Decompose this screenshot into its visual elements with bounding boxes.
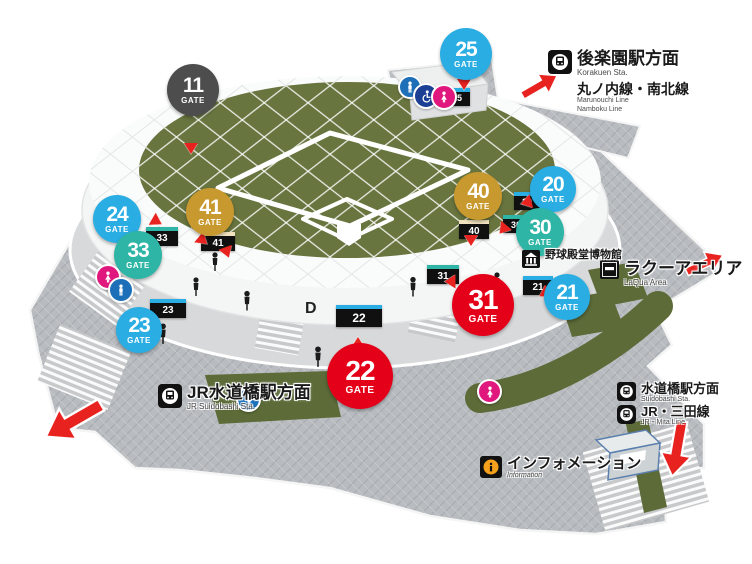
laqua-subtitle: LaQua Area bbox=[624, 278, 742, 288]
label-jr-suidobashi-station: JR水道橋駅方面 JR Suidobashi Sta. bbox=[158, 384, 311, 411]
information-title: インフォメーション bbox=[507, 456, 641, 472]
suidobashi-title: 水道橋駅方面 bbox=[641, 382, 719, 396]
gate-number: 40 bbox=[467, 181, 488, 202]
gate-number: 41 bbox=[199, 197, 220, 218]
gate-word: GATE bbox=[105, 226, 129, 234]
gate-badge-11: 11 GATE bbox=[167, 64, 219, 116]
suidobashi-subtitle: Suidobashi Sta. bbox=[641, 396, 719, 404]
label-suidobashi-station: 水道橋駅方面 Suidobashi Sta. bbox=[617, 382, 719, 404]
gate-word: GATE bbox=[181, 97, 205, 105]
korakuen-subtitle: Korakuen Sta. bbox=[577, 68, 689, 78]
gate-number: 11 bbox=[183, 75, 203, 96]
information-icon bbox=[480, 456, 502, 478]
gate-word: GATE bbox=[126, 262, 150, 270]
gate-word: GATE bbox=[466, 203, 490, 211]
gate-number: 24 bbox=[106, 204, 127, 225]
womens-restroom-icon bbox=[431, 84, 457, 110]
museum-title: 野球殿堂博物館 bbox=[545, 250, 622, 262]
gate-word: GATE bbox=[468, 315, 497, 325]
jr-suidobashi-title: JR水道橋駅方面 bbox=[187, 384, 311, 402]
information-subtitle: Information bbox=[507, 472, 641, 480]
korakuen-lines: 丸ノ内線・南北線 bbox=[577, 82, 689, 97]
laqua-title: ラクーアエリア bbox=[624, 260, 742, 278]
gate-number: 21 bbox=[556, 282, 577, 303]
train-icon bbox=[617, 382, 636, 401]
gate-word: GATE bbox=[454, 61, 478, 69]
gate-pointer-icon bbox=[184, 143, 198, 154]
wall-letter-d: D bbox=[305, 300, 317, 318]
gate-word: GATE bbox=[198, 219, 222, 227]
gate-word: GATE bbox=[541, 196, 565, 204]
jr-suidobashi-subtitle: JR Suidobashi Sta. bbox=[187, 402, 311, 412]
gate-word: GATE bbox=[127, 337, 151, 345]
gate-number: 22 bbox=[345, 357, 374, 385]
korakuen-title: 後楽園駅方面 bbox=[577, 50, 689, 68]
gate-number: 33 bbox=[127, 240, 148, 261]
stadium-map: 33 41 23 22 31 40 30 20 21 25 D 11 GATE … bbox=[0, 0, 752, 564]
gate-number: 30 bbox=[529, 217, 550, 238]
gate-badge-25: 25 GATE bbox=[440, 28, 492, 80]
gate-pointer-icon bbox=[445, 275, 456, 289]
gate-word: GATE bbox=[528, 239, 552, 247]
label-information: インフォメーション Information bbox=[480, 456, 641, 480]
gate-number: 31 bbox=[468, 286, 497, 314]
korakuen-line-sub2: Namboku Line bbox=[577, 106, 689, 114]
gate-badge-22: 22 GATE bbox=[327, 343, 393, 409]
gate-word: GATE bbox=[345, 386, 374, 396]
mens-restroom-icon bbox=[108, 277, 134, 303]
subway-icon bbox=[617, 405, 636, 424]
label-mita-line: JR・三田線 JR・Mita Line bbox=[617, 405, 710, 427]
gate-badge-41: 41 GATE bbox=[186, 188, 234, 236]
womens-restroom-icon bbox=[477, 379, 502, 404]
gate-badge-20: 20 GATE bbox=[530, 166, 576, 212]
gate-number: 25 bbox=[455, 39, 476, 60]
gate-badge-23: 23 GATE bbox=[116, 307, 162, 353]
label-museum: 野球殿堂博物館 bbox=[522, 250, 622, 268]
label-korakuen-station: 後楽園駅方面 Korakuen Sta. 丸ノ内線・南北線 Marunouchi… bbox=[548, 50, 689, 114]
gate-word: GATE bbox=[555, 304, 579, 312]
gate-pointer-icon bbox=[457, 79, 471, 90]
gate-badge-40: 40 GATE bbox=[454, 172, 502, 220]
gate-badge-21: 21 GATE bbox=[544, 274, 590, 320]
mita-title: JR・三田線 bbox=[641, 405, 710, 419]
museum-icon bbox=[522, 250, 540, 268]
gate-number: 23 bbox=[128, 315, 149, 336]
gate-badge-31: 31 GATE bbox=[452, 274, 514, 336]
mita-subtitle: JR・Mita Line bbox=[641, 419, 710, 427]
gate-badge-33: 33 GATE bbox=[114, 231, 162, 279]
gate-number: 20 bbox=[542, 174, 563, 195]
korakuen-line-sub1: Marunouchi Line bbox=[577, 97, 689, 105]
train-icon bbox=[158, 384, 182, 408]
train-icon bbox=[548, 50, 572, 74]
wall-sign-22: 22 bbox=[336, 305, 382, 327]
gate-pointer-icon bbox=[464, 235, 478, 246]
